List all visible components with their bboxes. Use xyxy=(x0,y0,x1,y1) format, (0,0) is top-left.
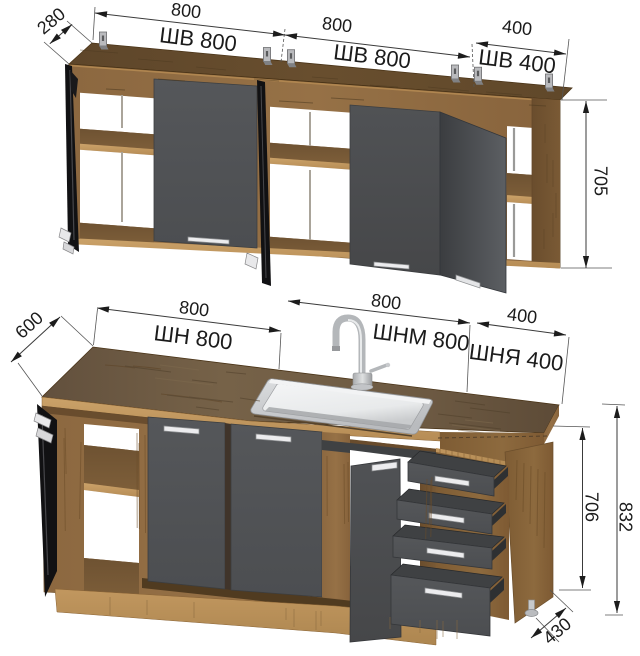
svg-text:430: 430 xyxy=(539,614,575,649)
svg-text:400: 400 xyxy=(506,304,538,328)
svg-text:800: 800 xyxy=(178,297,210,321)
svg-text:400: 400 xyxy=(501,16,533,39)
svg-text:ШНМ 800: ШНМ 800 xyxy=(371,319,471,356)
svg-text:800: 800 xyxy=(321,13,353,36)
svg-text:280: 280 xyxy=(33,4,69,39)
svg-text:ШНЯ 400: ШНЯ 400 xyxy=(468,339,565,376)
svg-text:800: 800 xyxy=(170,0,202,22)
svg-text:832: 832 xyxy=(615,502,635,532)
svg-text:ШН 800: ШН 800 xyxy=(153,320,234,354)
svg-text:600: 600 xyxy=(11,308,47,343)
svg-text:705: 705 xyxy=(590,166,610,196)
svg-text:ШВ 400: ШВ 400 xyxy=(477,44,557,78)
svg-text:706: 706 xyxy=(581,492,601,522)
svg-text:800: 800 xyxy=(370,290,402,314)
